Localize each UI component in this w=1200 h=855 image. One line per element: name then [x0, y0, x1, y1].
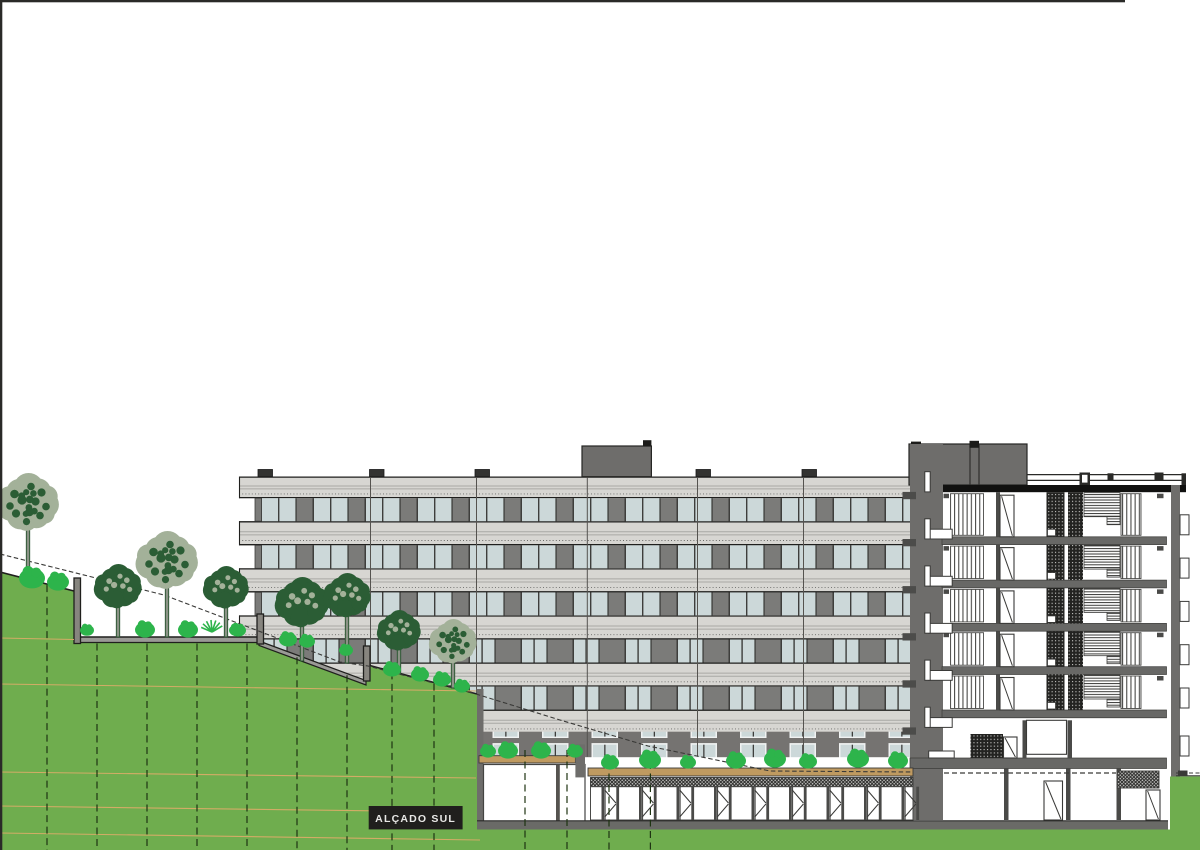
svg-text:ALÇADO SUL: ALÇADO SUL	[375, 813, 456, 825]
